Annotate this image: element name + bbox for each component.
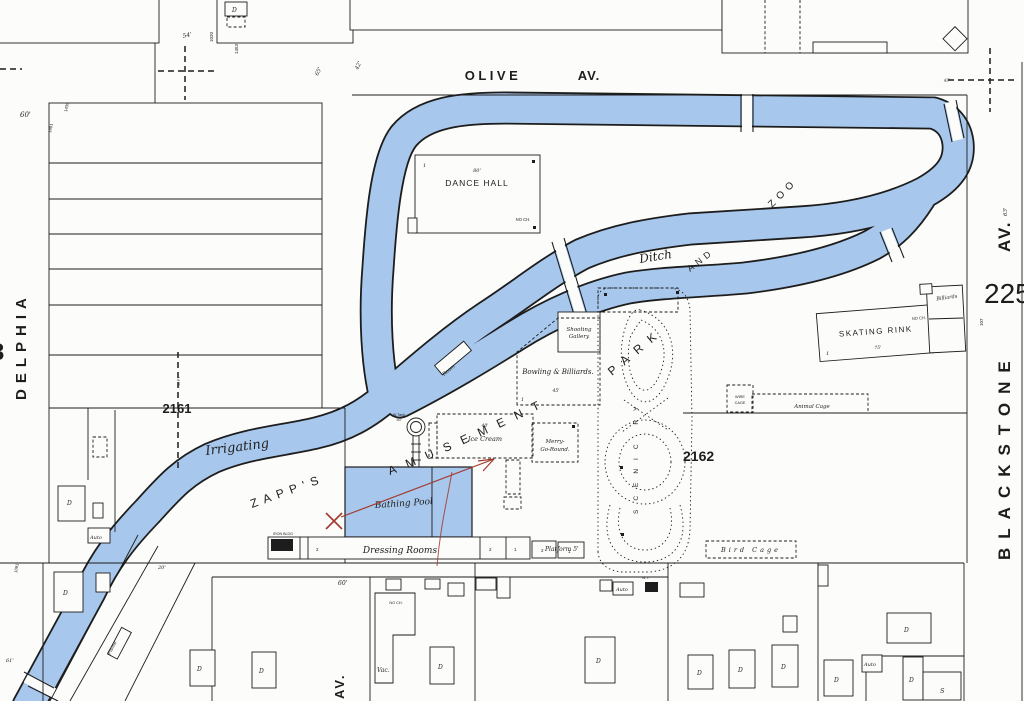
street-edge-sheds [108,565,828,659]
svg-text:63': 63' [1003,207,1009,216]
svg-text:42': 42' [942,77,950,83]
note-no-ch-south-bldg: NO CH. [389,601,402,605]
label-olive-av: AV. [578,68,601,83]
label-auto-2: Auto [615,587,628,593]
stories-bowling: 1 [521,397,524,403]
olive-avenue-north-buildings [0,0,968,53]
map-canvas: OLIVE AV. DELPHIA BLACKSTONE AV. AV. 225… [0,0,1024,701]
label-blackstone-av: AV. [995,220,1014,252]
dim-dance-hall: 80' [473,168,481,174]
label-zoo: ZOO [766,176,800,210]
label-blackstone-street: BLACKSTONE [995,352,1014,560]
label-shooting-gallery-2: Gallery [569,334,590,340]
svg-text:1453: 1453 [234,43,239,54]
bridge [741,94,753,132]
label-wire-cage-1: WIRE [735,395,745,399]
street-and-lot-lines [0,43,1022,701]
label-bottom-av: AV. [332,673,347,699]
svg-text:61': 61' [6,658,14,664]
label-delphia-street: DELPHIA [13,292,30,400]
svg-text:D: D [737,667,743,674]
label-water-tank: W.Tank [393,413,406,417]
svg-text:D: D [908,677,914,684]
svg-text:ZAPP'S: ZAPP'S [248,471,326,510]
label-merry-go-round-2: Go-Round. [540,447,570,453]
label-dance-hall: DANCE HALL [445,178,508,188]
label-vacant: Vac. [377,667,390,674]
svg-text:D: D [62,590,68,597]
svg-text:D: D [66,500,72,507]
dim-ice-cream: 40' [481,423,489,429]
sheet-number: 225 [984,278,1024,309]
dim-skating-rink: 75' [874,345,881,351]
label-ice-cream: Ice Cream [467,435,502,443]
sanborn-map-sheet: OLIVE AV. DELPHIA BLACKSTONE AV. AV. 225… [0,0,1024,701]
svg-text:42': 42' [354,61,363,72]
svg-text:1020: 1020 [209,31,214,42]
svg-text:54': 54' [182,31,193,40]
block-number-partial: 3 [0,339,4,366]
label-park: PARK [605,324,666,378]
building-labels: DANCE HALL 80' NO CH. 1 SKATING RINK NO … [89,163,958,695]
svg-text:D: D [595,658,601,665]
svg-text:D: D [833,677,839,684]
label-wt: W.T. [642,576,649,580]
svg-text:D: D [231,7,237,14]
dim-bowling: 45' [552,388,560,394]
label-animal-cage: Animal Cage [793,404,830,410]
label-platform: Platform 5' [544,546,579,553]
svg-text:740 FT: 740 FT [177,376,181,388]
svg-text:D: D [903,627,909,634]
roller-coaster [598,288,692,572]
stories-skating-rink: 1 [826,351,829,357]
merry-go-round-building [504,423,578,509]
label-zapps: ZAPP'S [248,471,326,510]
label-merry-go-round-1: Merry- [544,439,564,445]
svg-text:1491: 1491 [47,122,54,133]
label-dressing-rooms: Dressing Rooms [362,546,438,556]
note-no-ch-dance-hall: NO CH. [516,217,531,222]
svg-text:D: D [780,664,786,671]
svg-text:65': 65' [314,67,323,77]
label-shooting-gallery-1: Shooting [567,327,592,333]
svg-text:D: D [258,668,264,675]
label-olive-street: OLIVE [465,68,522,83]
label-bowling-billiards: Bowling & Billiards. [521,368,593,376]
label-auto-3: Auto [863,662,876,668]
svg-text:D: D [696,670,702,677]
svg-text:60': 60' [338,580,348,587]
label-store: S [940,687,945,695]
stories-dance-hall: 1 [423,163,426,169]
label-wire-cage-2: CAGE [735,401,746,405]
block-number-2162: 2162 [683,448,714,464]
dim-water-tank: 50' [397,418,402,422]
label-iron-bldg: IRON BLDG [273,532,293,536]
svg-text:D: D [196,666,202,673]
note-no-ch-skating-rink: NO CH. [912,315,926,321]
svg-text:1435: 1435 [63,101,70,112]
svg-text:20': 20' [157,565,166,571]
svg-text:1091: 1091 [13,562,20,573]
label-auto-1: Auto [89,535,102,541]
svg-text:D: D [437,664,443,671]
svg-text:60': 60' [20,111,31,119]
svg-text:PARK: PARK [605,324,666,378]
svg-text:ZOO: ZOO [766,176,800,210]
label-scenic-railway: SCENIC RY [633,398,640,514]
cage-buildings [706,385,868,558]
label-bird-cage: Bird Cage [720,546,781,554]
block-number-2161: 2161 [163,401,192,416]
delphia-strip-lots [49,103,322,408]
svg-text:107: 107 [979,318,984,326]
